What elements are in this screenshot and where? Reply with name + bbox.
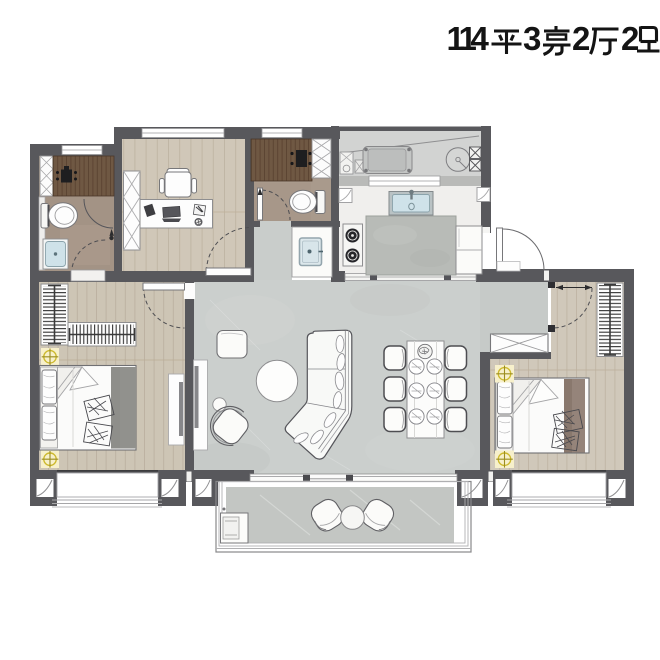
svg-text:2: 2: [621, 20, 639, 57]
svg-text:3: 3: [523, 20, 541, 57]
svg-text:4: 4: [471, 20, 490, 57]
svg-text:2: 2: [572, 20, 590, 57]
